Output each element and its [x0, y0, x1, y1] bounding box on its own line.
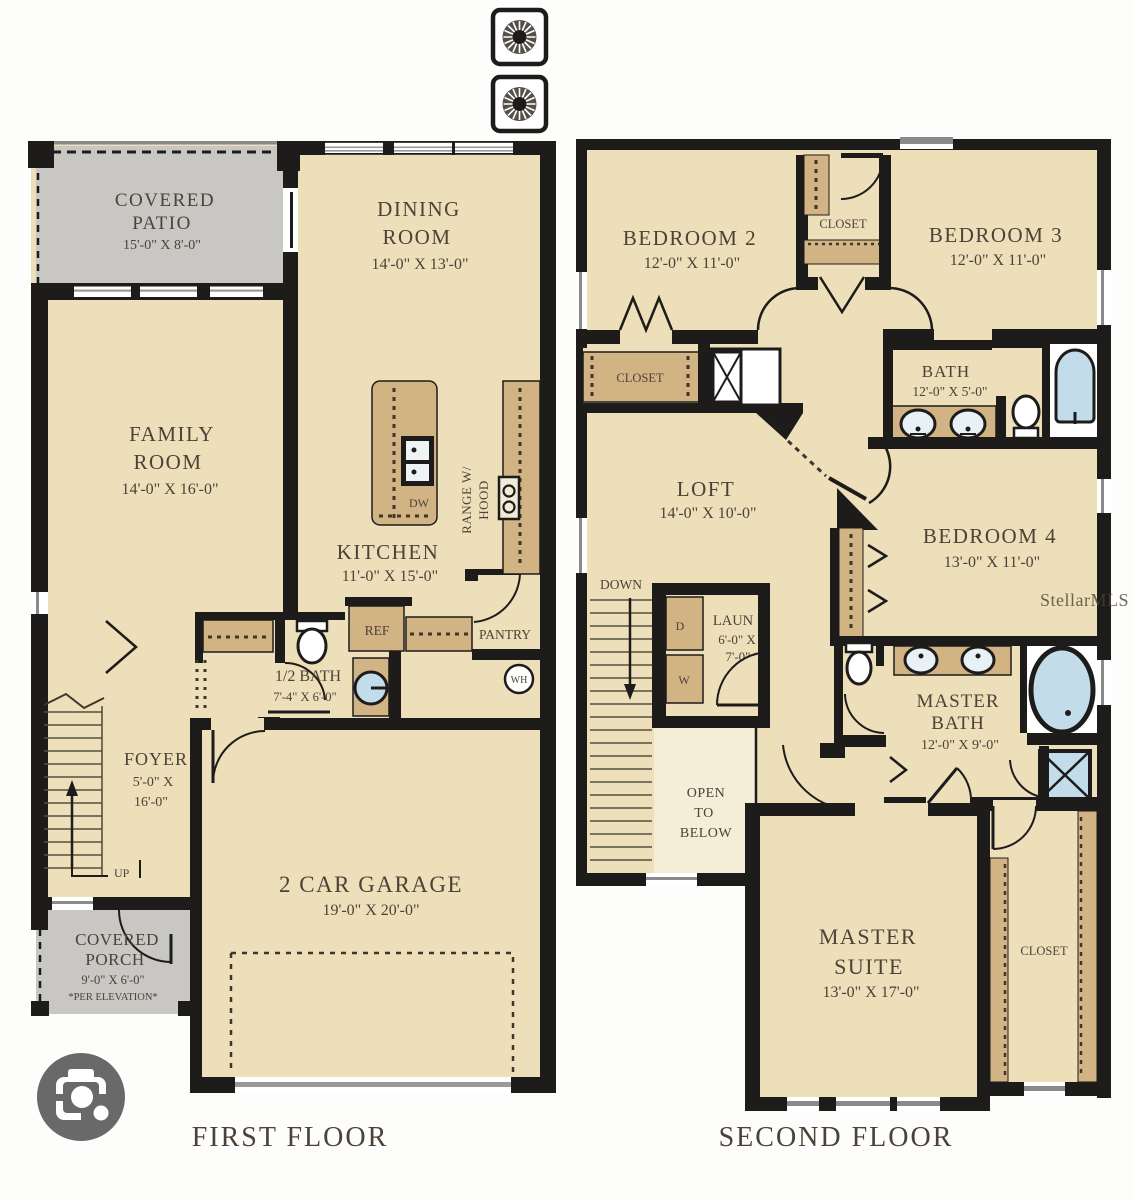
svg-text:13'-0" X 11'-0": 13'-0" X 11'-0" [944, 554, 1040, 571]
svg-text:StellarMLS: StellarMLS [1040, 590, 1129, 610]
svg-text:PATIO: PATIO [132, 213, 192, 234]
svg-text:DOWN: DOWN [600, 577, 642, 592]
svg-text:12'-0" X 9'-0": 12'-0" X 9'-0" [921, 738, 999, 753]
svg-text:CLOSET: CLOSET [616, 371, 664, 385]
svg-text:BELOW: BELOW [680, 826, 733, 841]
svg-text:12'-0" X 11'-0": 12'-0" X 11'-0" [950, 252, 1046, 269]
svg-text:LAUN: LAUN [713, 613, 754, 629]
svg-text:CLOSET: CLOSET [819, 217, 867, 231]
svg-text:LOFT: LOFT [677, 477, 736, 501]
svg-text:14'-0" X 13'-0": 14'-0" X 13'-0" [371, 256, 468, 273]
svg-text:12'-0" X 5'-0": 12'-0" X 5'-0" [912, 384, 987, 399]
svg-text:SECOND FLOOR: SECOND FLOOR [719, 1122, 954, 1153]
svg-text:CLOSET: CLOSET [1020, 944, 1068, 958]
svg-text:OPEN: OPEN [687, 786, 726, 801]
svg-text:UP: UP [114, 866, 130, 880]
svg-text:PANTRY: PANTRY [479, 627, 531, 642]
svg-text:12'-0" X 11'-0": 12'-0" X 11'-0" [644, 255, 740, 272]
svg-text:5'-0" X: 5'-0" X [133, 775, 174, 790]
svg-text:9'-0" X 6'-0": 9'-0" X 6'-0" [81, 973, 144, 987]
svg-text:SUITE: SUITE [834, 954, 904, 979]
svg-text:REF: REF [365, 623, 390, 638]
svg-text:ROOM: ROOM [133, 450, 202, 474]
svg-text:*PER ELEVATION*: *PER ELEVATION* [68, 992, 157, 1003]
svg-text:16'-0": 16'-0" [134, 795, 168, 810]
svg-text:BEDROOM 2: BEDROOM 2 [623, 226, 757, 250]
svg-text:FIRST FLOOR: FIRST FLOOR [192, 1122, 389, 1153]
svg-text:TO: TO [694, 806, 713, 821]
svg-text:W: W [678, 673, 690, 687]
svg-text:HOOD: HOOD [476, 480, 491, 520]
svg-text:DW: DW [409, 496, 430, 510]
svg-text:13'-0" X 17'-0": 13'-0" X 17'-0" [822, 984, 919, 1001]
svg-text:RANGE W/: RANGE W/ [459, 466, 474, 534]
svg-text:19'-0" X 20'-0": 19'-0" X 20'-0" [322, 902, 419, 919]
svg-text:COVERED: COVERED [75, 930, 159, 949]
svg-text:KITCHEN: KITCHEN [337, 540, 440, 564]
svg-text:FAMILY: FAMILY [129, 422, 215, 446]
svg-text:FOYER: FOYER [124, 749, 188, 769]
svg-text:6'-0" X: 6'-0" X [718, 632, 756, 647]
svg-text:14'-0" X 10'-0": 14'-0" X 10'-0" [659, 505, 756, 522]
svg-text:PORCH: PORCH [85, 950, 144, 969]
svg-text:WH: WH [511, 675, 528, 686]
svg-text:MASTER: MASTER [916, 691, 999, 712]
svg-text:BEDROOM 3: BEDROOM 3 [929, 223, 1063, 247]
svg-text:D: D [676, 619, 685, 633]
svg-text:1/2 BATH: 1/2 BATH [275, 668, 342, 685]
svg-text:ROOM: ROOM [382, 225, 451, 249]
svg-text:BATH: BATH [931, 713, 985, 734]
svg-text:7'-4" X 6'-0": 7'-4" X 6'-0" [273, 690, 336, 704]
svg-text:COVERED: COVERED [115, 190, 215, 211]
svg-text:14'-0" X 16'-0": 14'-0" X 16'-0" [121, 481, 218, 498]
svg-text:BATH: BATH [922, 362, 970, 381]
svg-text:MASTER: MASTER [819, 924, 917, 949]
svg-text:15'-0" X 8'-0": 15'-0" X 8'-0" [123, 238, 201, 253]
svg-text:BEDROOM 4: BEDROOM 4 [923, 524, 1057, 548]
svg-text:2 CAR GARAGE: 2 CAR GARAGE [279, 872, 463, 897]
svg-text:11'-0" X 15'-0": 11'-0" X 15'-0" [342, 568, 438, 585]
svg-text:DINING: DINING [377, 197, 461, 221]
